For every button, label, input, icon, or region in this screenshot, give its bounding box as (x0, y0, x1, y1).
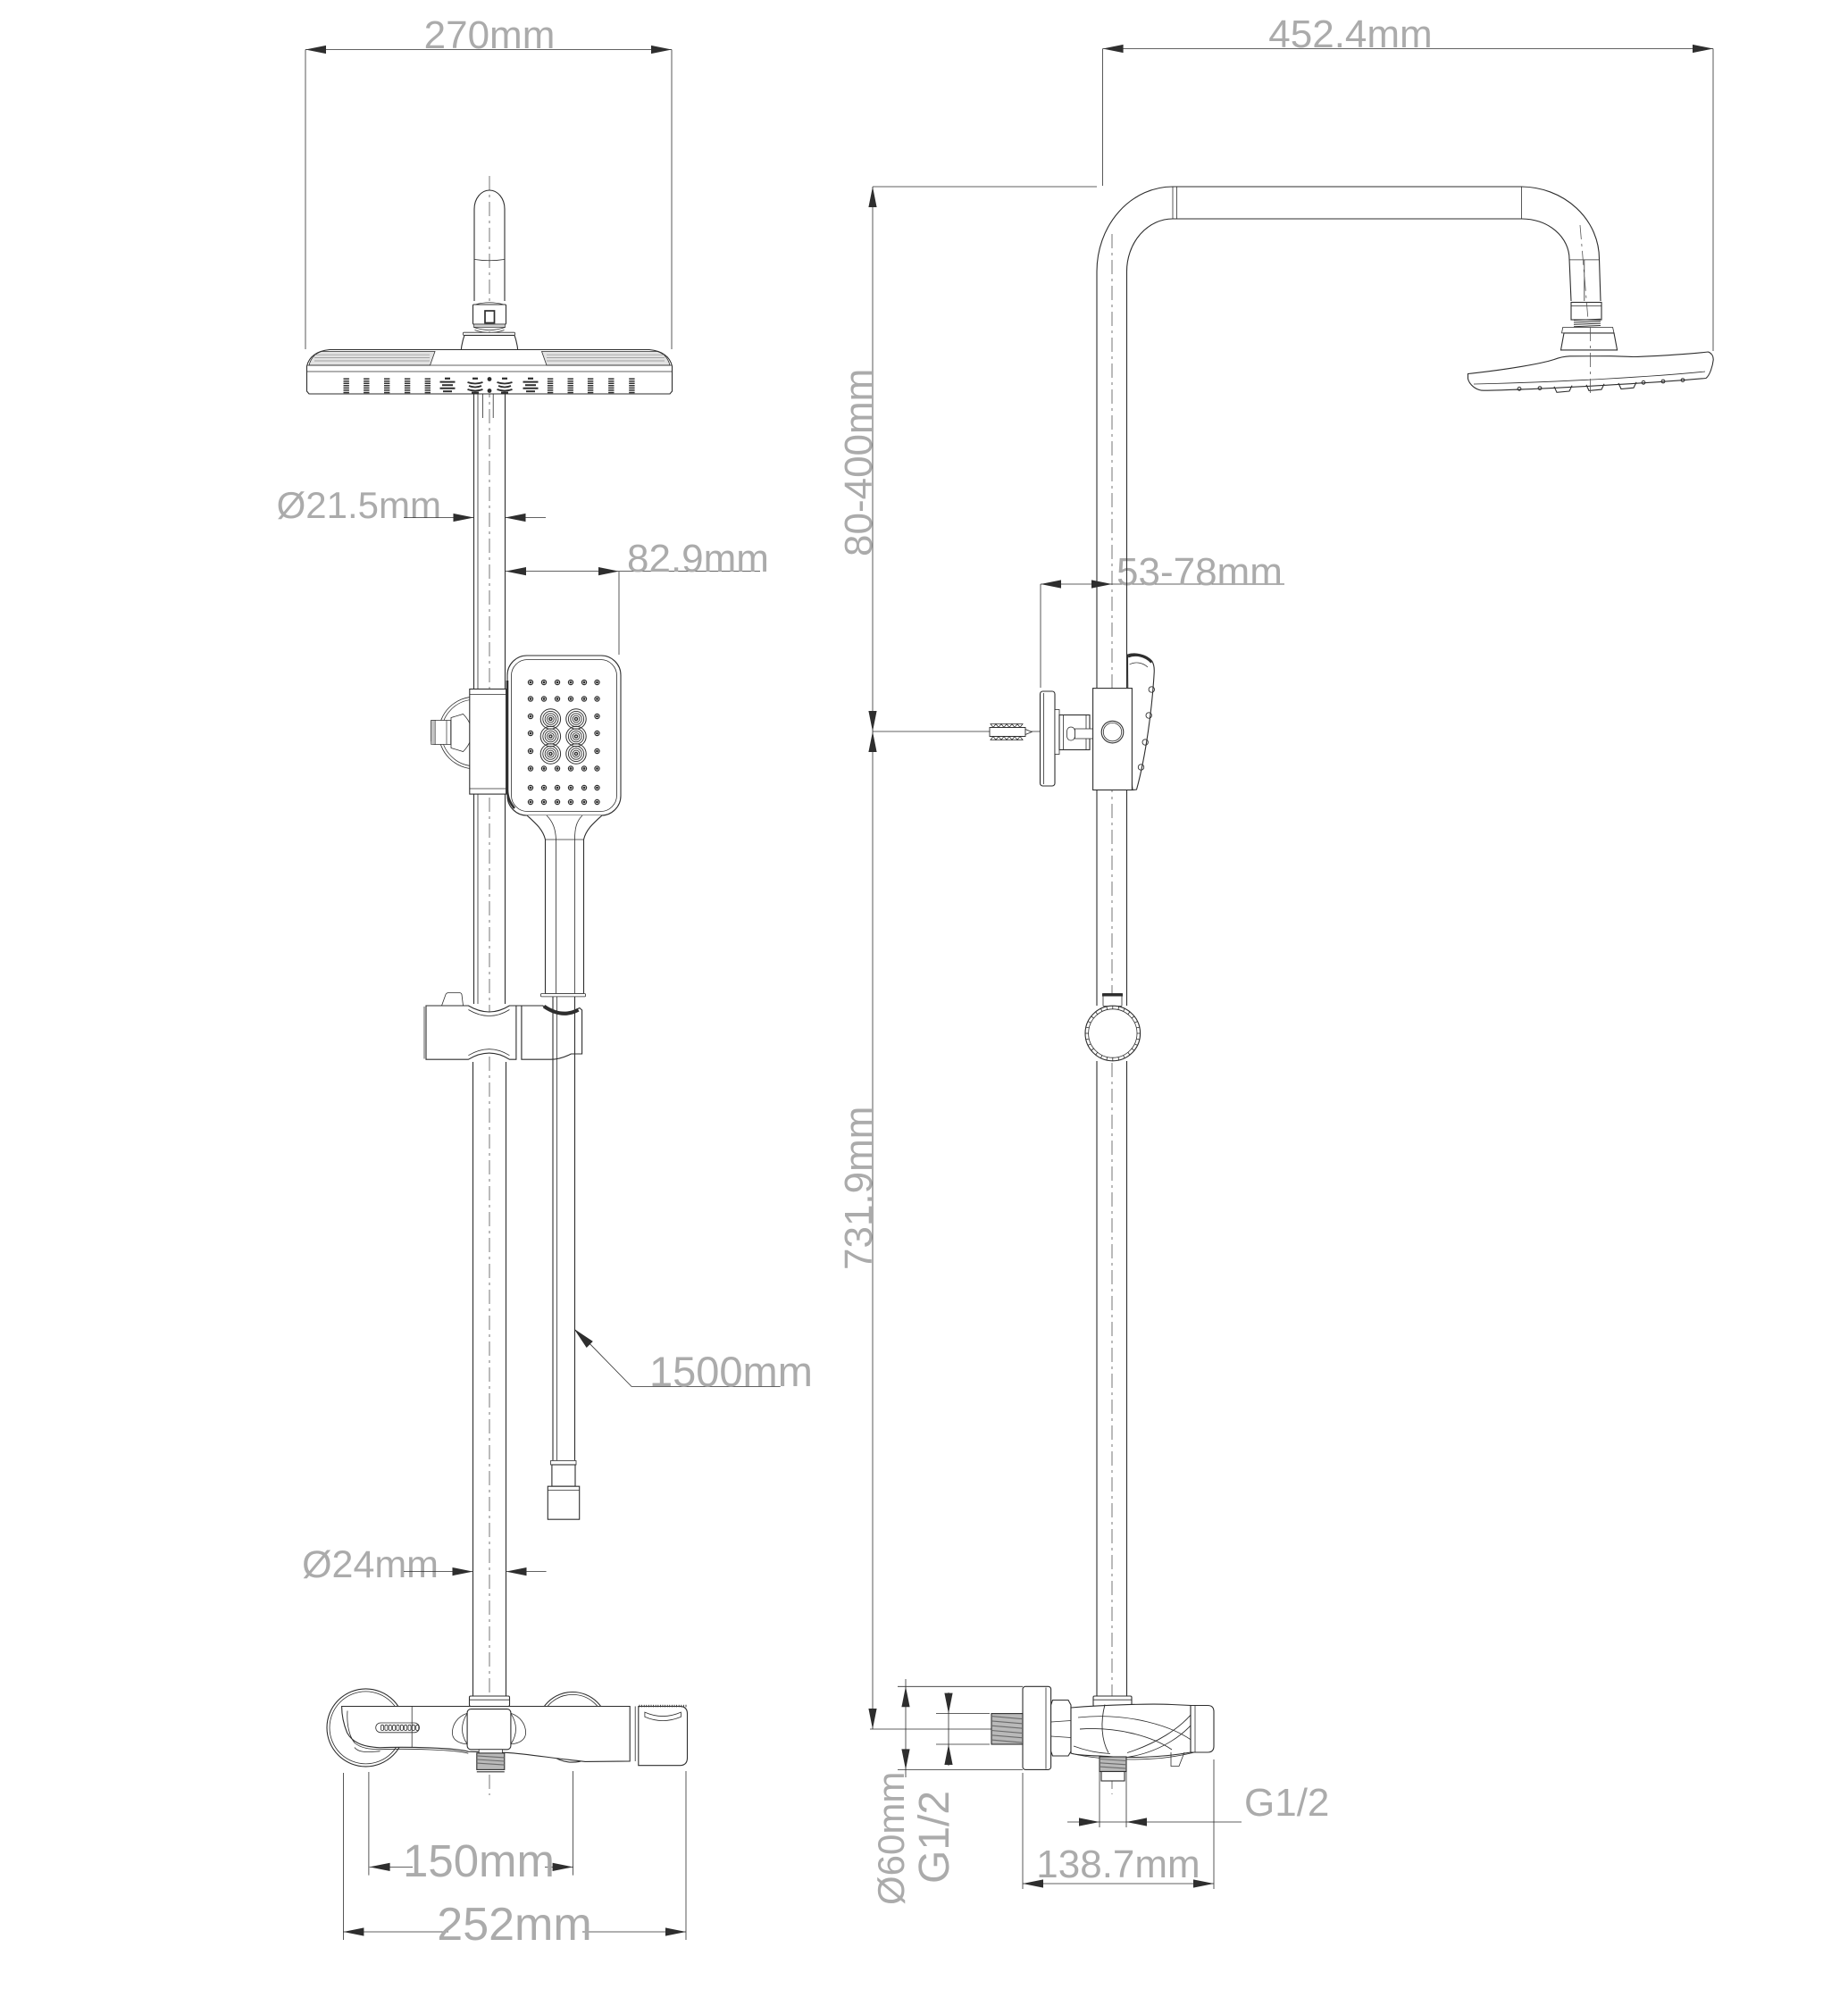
svg-text:G1/2: G1/2 (911, 1791, 958, 1884)
svg-text:270mm: 270mm (424, 13, 556, 57)
svg-text:80-400mm: 80-400mm (837, 369, 881, 556)
svg-text:731.9mm: 731.9mm (837, 1107, 881, 1270)
svg-text:82.9mm: 82.9mm (627, 537, 769, 581)
svg-text:252mm: 252mm (437, 1899, 591, 1951)
svg-text:150mm: 150mm (403, 1835, 555, 1886)
svg-text:Ø21.5mm: Ø21.5mm (277, 484, 441, 526)
svg-text:452.4mm: 452.4mm (1268, 13, 1432, 56)
svg-text:53-78mm: 53-78mm (1116, 550, 1283, 594)
svg-text:Ø60mm: Ø60mm (870, 1772, 912, 1905)
svg-text:138.7mm: 138.7mm (1036, 1843, 1200, 1886)
svg-text:Ø24mm: Ø24mm (302, 1543, 439, 1586)
svg-text:1500mm: 1500mm (649, 1348, 813, 1395)
svg-text:G1/2: G1/2 (1244, 1781, 1329, 1825)
